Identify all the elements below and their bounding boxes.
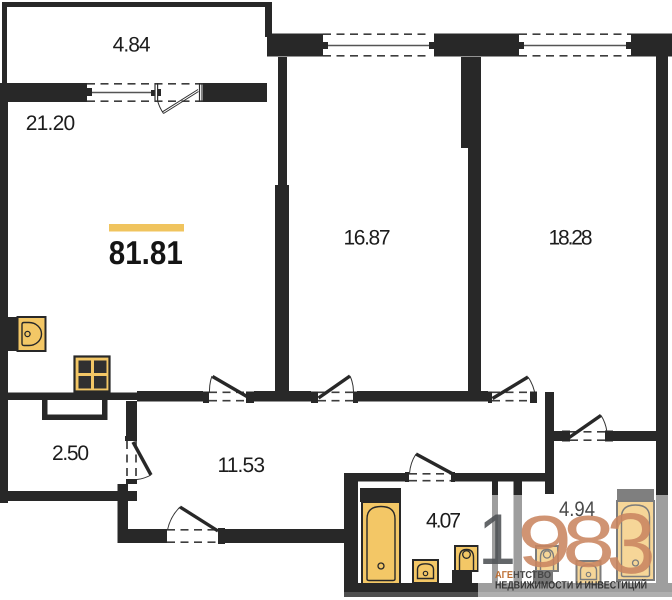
svg-text:11.53: 11.53 xyxy=(218,454,266,477)
svg-text:2.50: 2.50 xyxy=(52,442,89,465)
svg-text:4.94: 4.94 xyxy=(559,498,595,521)
svg-text:21.20: 21.20 xyxy=(26,112,75,135)
svg-text:4.84: 4.84 xyxy=(113,34,151,57)
svg-text:1: 1 xyxy=(478,500,516,580)
svg-text:18.28: 18.28 xyxy=(549,227,593,250)
svg-text:НЕДВИЖИМОСТИ И ИНВЕСТИЦИЙ: НЕДВИЖИМОСТИ И ИНВЕСТИЦИЙ xyxy=(495,579,647,592)
svg-text:16.87: 16.87 xyxy=(344,227,391,250)
svg-text:81.81: 81.81 xyxy=(109,234,183,271)
svg-text:3: 3 xyxy=(606,496,656,592)
svg-text:4.07: 4.07 xyxy=(426,510,461,533)
